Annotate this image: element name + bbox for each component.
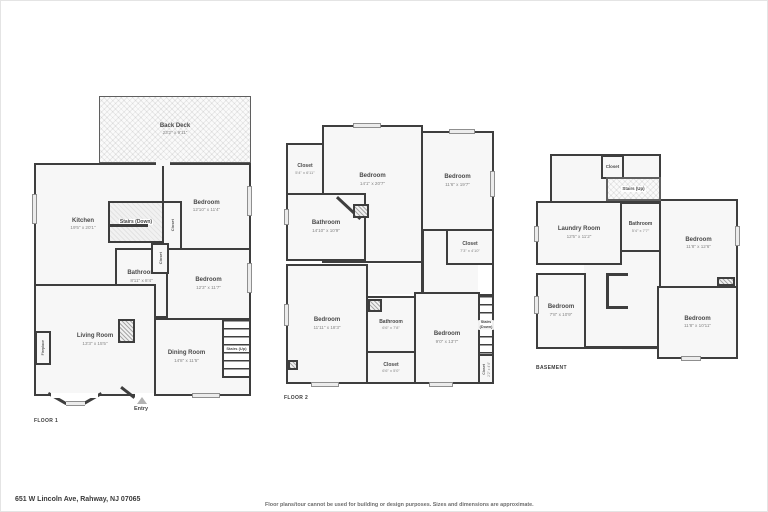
room-label-group: Bedroom 14'1" x 20'7" [359, 173, 385, 186]
room-label: Bedroom [195, 277, 221, 285]
room-label: Back Deck [160, 123, 190, 131]
room-bedroom-right-f2: Bedroom 11'6" x 19'7" [421, 131, 494, 231]
room-dims: 11'8" x 10'11" [684, 323, 711, 329]
room-laundry: Laundry Room 12'5" x 11'2" [536, 201, 622, 265]
room-dims: 9'0" x 13'7" [436, 339, 459, 345]
hall-wall [421, 231, 424, 294]
window [681, 356, 701, 361]
room-dims: 11'11" x 18'3" [313, 325, 340, 331]
room-bedroom-bl-basement: Bedroom 7'8" x 10'9" [536, 273, 586, 349]
room-dims: 14'8" x 11'5" [168, 358, 205, 364]
bottom-wall [584, 346, 659, 349]
room-bedroom-right-f1: Bedroom 12'3" x 11'7" [166, 248, 251, 320]
room-label: Stairs (Up) [621, 186, 645, 192]
room-label: Bedroom [359, 173, 385, 181]
room-dims: 12'5" x 11'2" [567, 234, 592, 240]
room-bedroom-left-f2: Bedroom 11'11" x 18'3" [286, 264, 368, 384]
room-back-deck: Back Deck 23'2" x 9'11" [99, 96, 251, 163]
deck-door-gap [156, 160, 170, 166]
room-bedroom-mid-f2: Bedroom 9'0" x 13'7" [414, 292, 480, 384]
entry-arrow-icon [137, 397, 147, 404]
fireplace-label: Fireplace [41, 340, 45, 355]
room-closet-tl: Closet 5'4" x 6'11" [286, 143, 324, 195]
window [284, 209, 289, 225]
basement-label: BASEMENT [536, 365, 567, 371]
room-label: Bedroom [685, 237, 711, 245]
room-dims: 23'2" x 9'11" [163, 130, 188, 136]
floor2-label: FLOOR 2 [284, 395, 308, 401]
room-dims: 12'10" x 11'4" [193, 207, 220, 213]
entry-label: Entry [126, 406, 156, 412]
window-box [717, 277, 735, 286]
room-closet-2: Closet [151, 243, 169, 274]
room-dims: 6'6" x 7'8" [382, 325, 400, 330]
window [192, 393, 220, 398]
room-dims: 6'6" x 5'0" [382, 368, 400, 373]
partial-wall [606, 306, 628, 309]
partial-wall [606, 273, 628, 276]
room-label: Kitchen [70, 218, 95, 226]
room-closet-basement: Closet [601, 155, 624, 179]
floor1-label: FLOOR 1 [34, 418, 58, 424]
room-dims: 14'10" x 10'9" [312, 228, 340, 234]
room-dims: 12'3" x 11'7" [196, 285, 221, 291]
room-dims: 11'6" x 19'7" [445, 182, 470, 188]
room-label: Closet [606, 164, 619, 170]
partial-wall [606, 273, 609, 309]
room-dims: 5'4" x 7'7" [632, 228, 650, 233]
footer-address: 651 W Lincoln Ave, Rahway, NJ 07065 [15, 496, 140, 503]
room-label: Closet [482, 364, 486, 375]
room-label: Stairs (Down) [478, 320, 494, 329]
room-dims: 2'2" x 4'4" [487, 362, 491, 377]
window [247, 263, 252, 293]
footer-disclaimer: Floor plans/tour cannot be used for buil… [265, 502, 534, 508]
room-dims: 8'11" x 8'4" [127, 278, 155, 284]
window [353, 123, 381, 128]
room-stairs-up: Stairs (Up) [222, 318, 251, 378]
chimney-box [288, 360, 298, 370]
room-label: Dining Room [168, 350, 205, 358]
room-closet-right: Closet 7'3" x 4'10" [446, 229, 494, 265]
window [490, 171, 495, 197]
room-label: Bedroom [434, 331, 460, 339]
room-label: Closet [158, 252, 163, 264]
window [284, 304, 289, 326]
window [534, 226, 539, 242]
room-living: Living Room 13'3" x 15'5" [34, 284, 156, 396]
outer-wall [492, 261, 495, 296]
window [429, 382, 453, 387]
floor1-plan: Back Deck 23'2" x 9'11" Kitchen 19'5" x … [34, 96, 252, 431]
chimney-box [118, 319, 135, 343]
window [247, 186, 252, 216]
room-dims: 5'4" x 6'11" [295, 170, 314, 175]
room-bedroom-tr-basement: Bedroom 11'8" x 12'6" [659, 199, 738, 288]
window [449, 129, 475, 134]
room-closet-br: Closet 2'2" x 4'4" [478, 354, 494, 384]
room-dims: 19'5" x 20'1" [70, 225, 95, 231]
hallway-fill [622, 252, 659, 350]
room-bedroom-br-basement: Bedroom 11'8" x 10'11" [657, 286, 738, 359]
fireplace: Fireplace [35, 331, 51, 365]
chimney-box [353, 204, 369, 218]
room-label: Laundry Room [558, 226, 600, 234]
basement-plan: Closet Stairs (Up) Laundry Room 12'5" x … [536, 148, 741, 378]
room-label: Bedroom [193, 200, 219, 208]
room-label: Living Room [77, 333, 113, 341]
bay-window-center [66, 401, 85, 406]
room-dims: 11'8" x 12'6" [686, 244, 711, 250]
window [311, 382, 339, 387]
room-stairs-up-basement: Stairs (Up) [606, 177, 661, 201]
bay-window-gap [51, 393, 98, 398]
room-label: Stairs (Up) [225, 346, 249, 351]
room-label: Bedroom [684, 316, 710, 324]
room-label: Bedroom [444, 174, 470, 182]
window [534, 296, 539, 314]
chimney-box [368, 299, 382, 312]
room-label: Bathroom [312, 220, 340, 228]
hallway-fill [423, 231, 446, 292]
room-dims: 7'8" x 10'9" [550, 312, 573, 318]
window [32, 194, 37, 224]
room-label-group: Dining Room 14'8" x 11'5" [168, 350, 205, 363]
room-dims: 14'1" x 20'7" [359, 181, 385, 187]
room-stairs-down: Stairs (Down) [108, 201, 164, 243]
floorplan-page: Back Deck 23'2" x 9'11" Kitchen 19'5" x … [0, 0, 768, 512]
floor2-plan: Bedroom 14'1" x 20'7" Bedroom 11'6" x 19… [286, 119, 496, 409]
stair-return-wall [110, 224, 148, 227]
room-dims: 13'3" x 15'5" [82, 341, 107, 347]
room-label: Bedroom [548, 304, 574, 312]
room-label: Closet [170, 219, 175, 231]
room-closet-mid: Closet 6'6" x 5'0" [366, 351, 416, 384]
room-label-group: Kitchen 19'5" x 20'1" [70, 218, 95, 231]
room-stairs-down-f2: Stairs (Down) [478, 294, 494, 356]
room-dims: 7'3" x 4'10" [460, 248, 480, 253]
room-label: Bedroom [314, 317, 340, 325]
window [735, 226, 740, 246]
room-bathroom-basement: Bathroom 5'4" x 7'7" [620, 202, 661, 252]
